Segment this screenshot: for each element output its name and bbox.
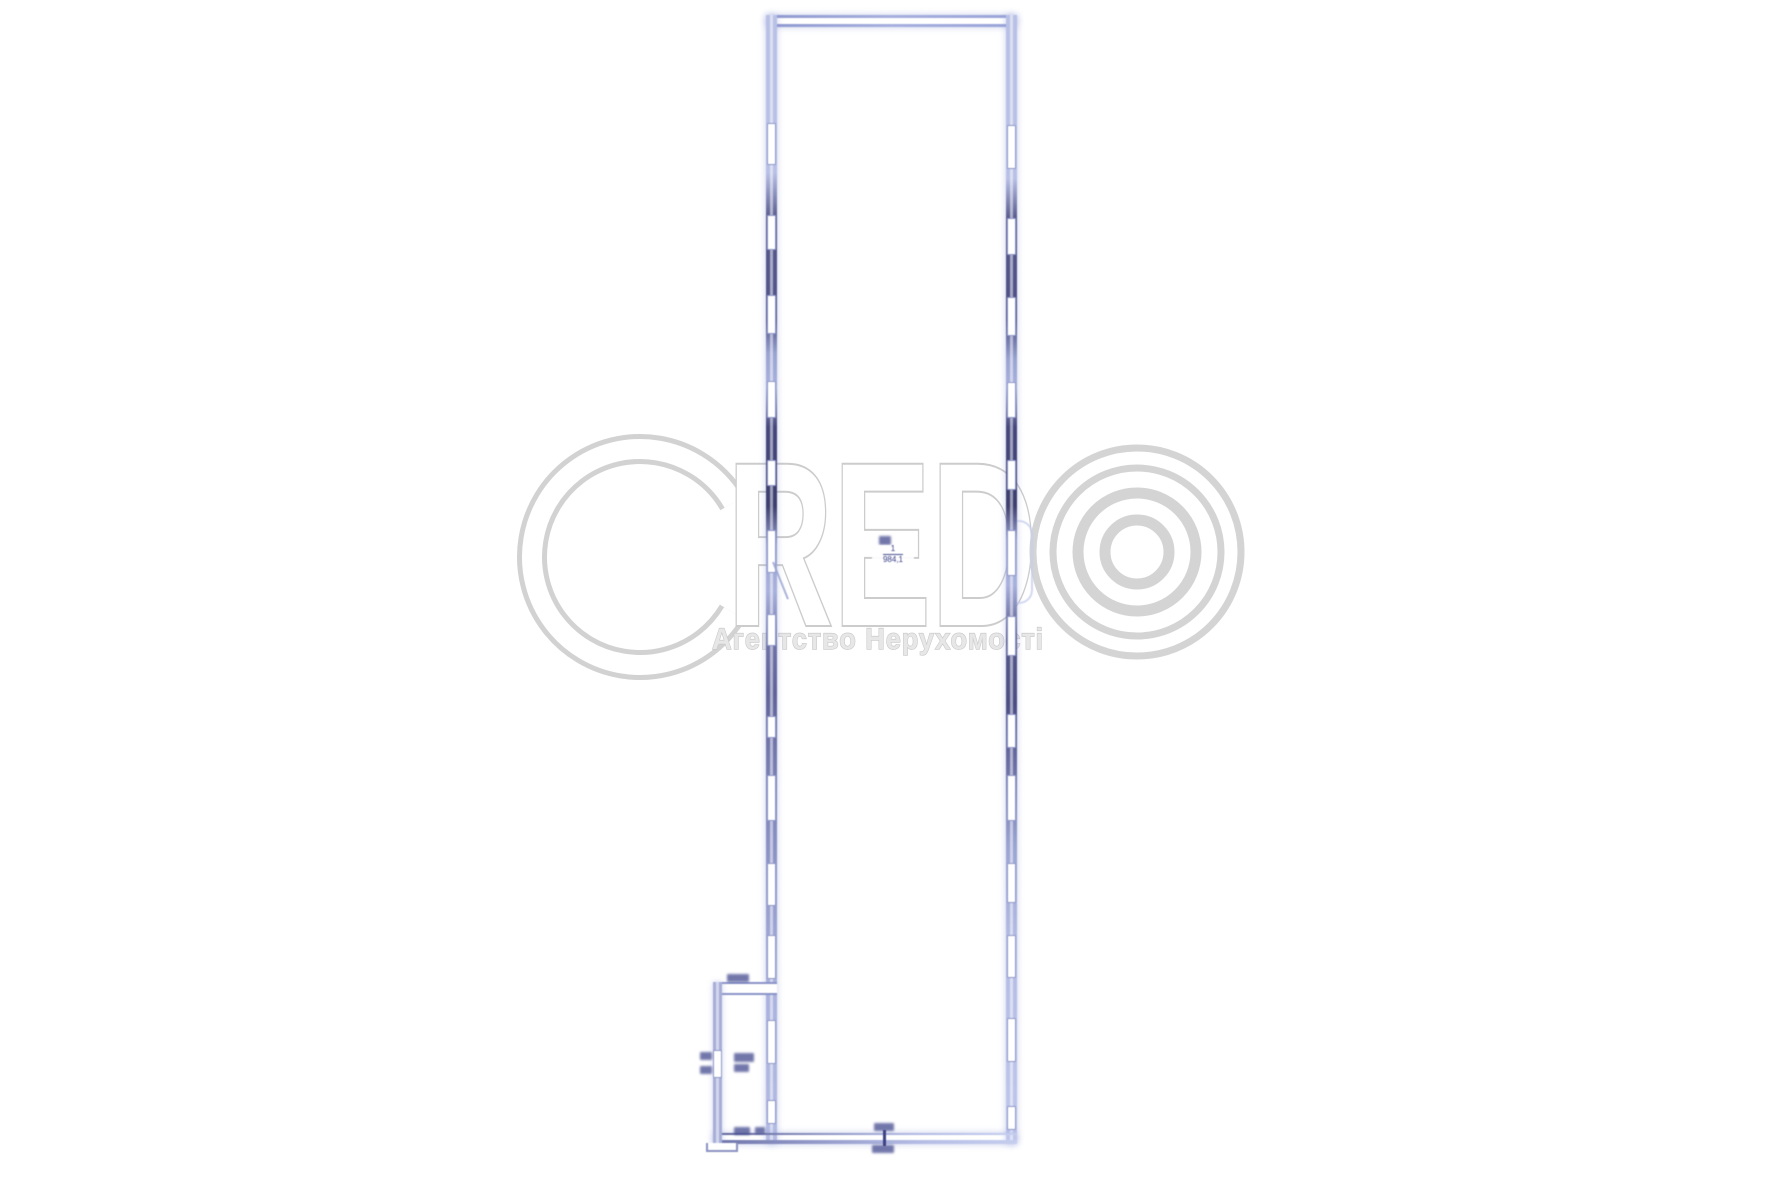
- window-symbol: [767, 215, 776, 250]
- door-swing-right: [1017, 520, 1033, 604]
- window-symbol: [767, 935, 776, 979]
- window-symbol: [767, 123, 776, 165]
- window-symbol: [767, 1020, 776, 1064]
- window-symbol: [767, 775, 776, 821]
- wall-bottom: [713, 1133, 1017, 1144]
- window-symbol: [767, 863, 776, 906]
- dimension-mark: [734, 1053, 754, 1062]
- window-symbol: [1007, 775, 1016, 821]
- wall-left: [766, 15, 777, 1144]
- floor-plan: 1 984,1: [0, 0, 1772, 1181]
- window-symbol: [1007, 382, 1016, 418]
- window-symbol: [767, 381, 776, 418]
- room-area: 984,1: [872, 556, 914, 564]
- window-symbol: [1007, 1018, 1016, 1062]
- dimension-mark: [734, 1127, 750, 1135]
- dimension-mark: [755, 1127, 765, 1134]
- dimension-mark: [734, 1064, 749, 1072]
- dimension-mark: [700, 1052, 712, 1060]
- window-symbol: [1007, 863, 1016, 903]
- room-label: 1 984,1: [872, 545, 914, 564]
- window-symbol: [1007, 125, 1016, 169]
- entry-step: [706, 1143, 738, 1152]
- window-symbol: [1007, 218, 1016, 255]
- annex-wall-top: [713, 982, 777, 995]
- dimension-mark: [727, 974, 749, 982]
- window-symbol: [1007, 1106, 1016, 1130]
- wall-line: [713, 1140, 1017, 1144]
- dimension-mark: [879, 536, 891, 545]
- window-symbol: [1007, 714, 1016, 748]
- floor-plan-scan: RED Агентство Нерухомості: [0, 0, 1772, 1181]
- window-symbol: [767, 1100, 776, 1124]
- window-symbol: [767, 295, 776, 334]
- annex-wall-left: [713, 982, 722, 1144]
- wall-top: [766, 15, 1017, 27]
- wall-line: [766, 15, 1017, 18]
- room-number: 1: [872, 545, 914, 554]
- window-symbol: [767, 716, 776, 738]
- window-symbol: [767, 460, 776, 486]
- wall-line: [766, 24, 1017, 27]
- dimension-mark: [872, 1145, 894, 1153]
- window-symbol: [1007, 297, 1016, 336]
- door-axis-tick: [883, 1130, 886, 1146]
- wall-right: [1006, 15, 1017, 1144]
- window-symbol: [1007, 460, 1016, 490]
- window-symbol: [1007, 530, 1016, 576]
- window-symbol: [767, 614, 776, 646]
- window-symbol: [1007, 616, 1016, 656]
- window-symbol: [1007, 935, 1016, 978]
- window-symbol: [713, 1050, 722, 1078]
- dimension-mark: [700, 1066, 712, 1074]
